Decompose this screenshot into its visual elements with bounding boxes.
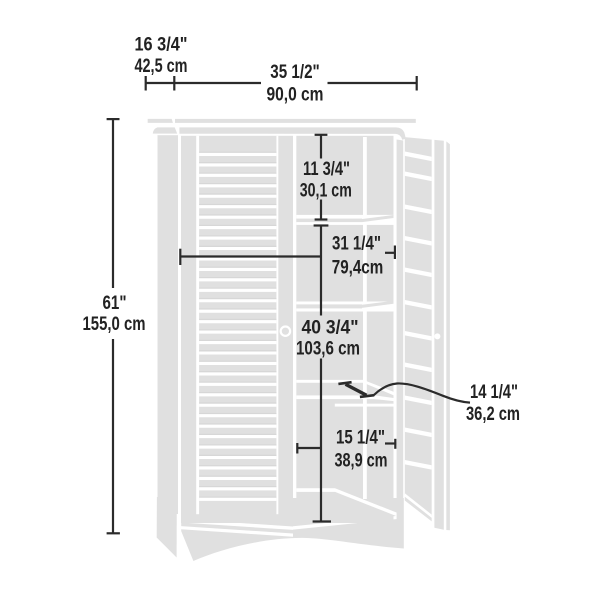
svg-text:61": 61" [103,293,127,314]
svg-text:42,5 cm: 42,5 cm [135,56,188,77]
svg-text:155,0 cm: 155,0 cm [83,314,146,335]
svg-text:90,0 cm: 90,0 cm [267,85,324,106]
svg-text:40 3/4": 40 3/4" [302,318,359,339]
svg-text:30,1 cm: 30,1 cm [300,181,352,202]
svg-text:11 3/4": 11 3/4" [303,159,350,180]
svg-text:31 1/4": 31 1/4" [332,234,381,255]
svg-text:36,2 cm: 36,2 cm [466,404,520,425]
svg-text:79,4cm: 79,4cm [332,258,384,279]
svg-text:38,9 cm: 38,9 cm [335,451,388,472]
svg-text:14 1/4": 14 1/4" [470,382,518,403]
svg-text:103,6 cm: 103,6 cm [296,339,360,360]
svg-text:16 3/4": 16 3/4" [135,35,188,56]
svg-text:15 1/4": 15 1/4" [336,428,385,449]
svg-text:35 1/2": 35 1/2" [270,62,320,83]
